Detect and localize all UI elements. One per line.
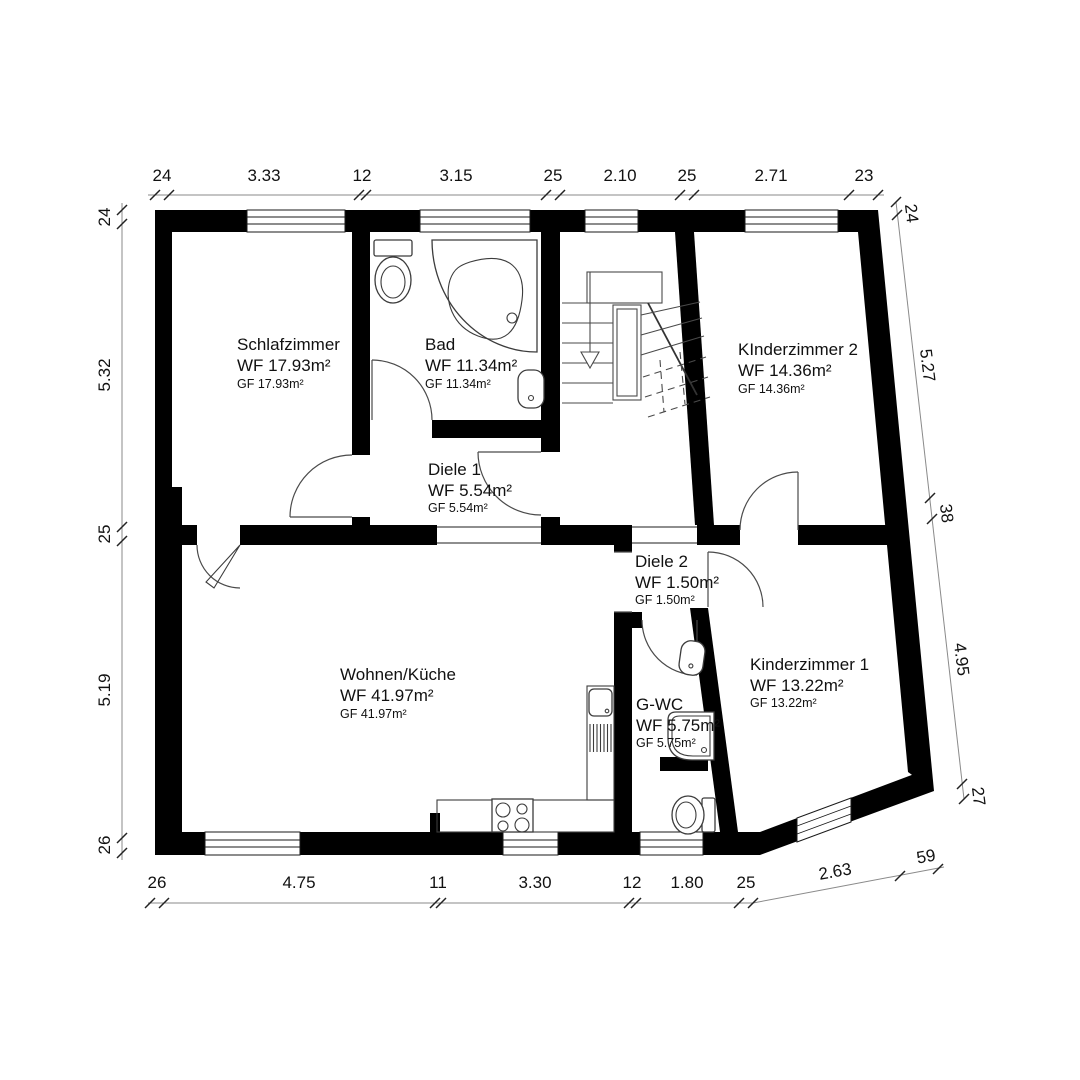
dim-label: 5.32 bbox=[95, 358, 114, 391]
dim-label: 24 bbox=[95, 208, 114, 227]
toilet bbox=[374, 240, 412, 303]
room-label-kinderzimmer2: KInderzimmer 2 WF 14.36m² GF 14.36m² bbox=[738, 340, 858, 396]
dim-label: 26 bbox=[95, 836, 114, 855]
dim-label: 3.15 bbox=[439, 166, 472, 185]
wall-stair-kinderzimmer2 bbox=[675, 232, 714, 525]
wall-middle-d bbox=[798, 525, 890, 545]
dim-label: 27 bbox=[968, 786, 989, 807]
window bbox=[585, 210, 638, 232]
room-name: Wohnen/Küche bbox=[340, 665, 456, 684]
window bbox=[745, 210, 838, 232]
room-label-diele2: Diele 2 WF 1.50m² GF 1.50m² bbox=[635, 552, 719, 607]
dim-label: 38 bbox=[936, 503, 957, 524]
window bbox=[247, 210, 345, 232]
opening-diele1-wohnen bbox=[437, 527, 541, 543]
window bbox=[205, 832, 300, 855]
gwc-toilet bbox=[672, 796, 715, 834]
room-wf: WF 1.50m² bbox=[635, 573, 719, 592]
wall-bad-diele1 bbox=[432, 420, 541, 438]
dim-label: 2.10 bbox=[603, 166, 636, 185]
dim-label: 26 bbox=[148, 873, 167, 892]
wall-middle-c bbox=[697, 525, 740, 545]
room-gf: GF 1.50m² bbox=[635, 593, 695, 607]
room-name: Diele 1 bbox=[428, 460, 481, 479]
room-wf: WF 5.54m² bbox=[428, 481, 512, 500]
gwc-sink bbox=[678, 639, 706, 676]
dim-label: 25 bbox=[544, 166, 563, 185]
wall-middle-b bbox=[541, 525, 632, 545]
room-label-wohnen-kueche: Wohnen/Küche WF 41.97m² GF 41.97m² bbox=[340, 665, 456, 721]
door-schlafzimmer bbox=[290, 455, 352, 517]
stove bbox=[492, 799, 533, 832]
floor-plan-page: Schlafzimmer WF 17.93m² GF 17.93m² Bad W… bbox=[0, 0, 1080, 1080]
room-name: Diele 2 bbox=[635, 552, 688, 571]
room-name: Bad bbox=[425, 335, 455, 354]
wall-wohnen-gwc bbox=[614, 612, 632, 832]
dim-label: 4.75 bbox=[282, 873, 315, 892]
wall-middle-a2 bbox=[240, 525, 437, 545]
room-name: KInderzimmer 2 bbox=[738, 340, 858, 359]
room-wf: WF 13.22m² bbox=[750, 676, 844, 695]
room-wf: WF 14.36m² bbox=[738, 361, 832, 380]
door-bad bbox=[372, 360, 432, 420]
dim-label: 25 bbox=[737, 873, 756, 892]
room-gf: GF 17.93m² bbox=[237, 377, 304, 391]
opening-stair-diele2 bbox=[632, 527, 697, 543]
room-wf: WF 11.34m² bbox=[425, 356, 518, 375]
dim-label: 12 bbox=[353, 166, 372, 185]
dim-label: 24 bbox=[153, 166, 172, 185]
dim-label: 3.30 bbox=[518, 873, 551, 892]
room-label-diele1: Diele 1 WF 5.54m² GF 5.54m² bbox=[428, 460, 512, 515]
stair-down-arrow bbox=[581, 352, 599, 368]
dimension-chain-left: 24 5.32 25 5.19 26 bbox=[95, 203, 127, 860]
wall-middle-a1 bbox=[172, 525, 197, 545]
room-gf: GF 41.97m² bbox=[340, 707, 407, 721]
wall-diele2-gwc bbox=[632, 612, 642, 628]
window bbox=[640, 832, 703, 855]
dim-label: 23 bbox=[855, 166, 874, 185]
room-gf: GF 13.22m² bbox=[750, 696, 817, 710]
room-wf: WF 17.93m² bbox=[237, 356, 331, 375]
dimension-chain-top: 24 3.33 12 3.15 25 2.10 25 2.71 23 bbox=[148, 166, 884, 200]
room-gf: GF 14.36m² bbox=[738, 382, 805, 396]
dim-label: 5.27 bbox=[916, 348, 939, 383]
room-gf: GF 11.34m² bbox=[425, 377, 491, 391]
dim-label: 4.95 bbox=[950, 642, 973, 677]
room-name: Kinderzimmer 1 bbox=[750, 655, 869, 674]
dim-label: 25 bbox=[678, 166, 697, 185]
wall-right-slanted bbox=[858, 210, 934, 791]
walls bbox=[155, 210, 934, 855]
room-gf: GF 5.54m² bbox=[428, 501, 488, 515]
room-label-kinderzimmer1: Kinderzimmer 1 WF 13.22m² GF 13.22m² bbox=[750, 655, 869, 710]
dim-label: 25 bbox=[95, 525, 114, 544]
dim-label: 5.19 bbox=[95, 673, 114, 706]
wall-left-upper bbox=[155, 210, 172, 490]
door-wohnen-angled bbox=[197, 545, 240, 588]
dim-label: 12 bbox=[623, 873, 642, 892]
window-slanted bbox=[797, 798, 851, 842]
wall-schlafzimmer-bad bbox=[352, 232, 370, 455]
room-name: Schlafzimmer bbox=[237, 335, 340, 354]
room-gf: GF 5.75m² bbox=[636, 736, 696, 750]
dim-label: 2.71 bbox=[754, 166, 787, 185]
door-kinderzimmer2 bbox=[740, 472, 798, 530]
dim-label: 24 bbox=[901, 203, 922, 224]
dim-label: 59 bbox=[915, 846, 937, 868]
dim-label: 1.80 bbox=[670, 873, 703, 892]
wall-kitchen-stub bbox=[430, 813, 440, 832]
opening-wohnen-diele2 bbox=[614, 552, 632, 612]
wall-bad-stair-upper bbox=[541, 232, 560, 452]
dim-label: 2.63 bbox=[817, 859, 853, 883]
wall-wohnen-diele2-stub bbox=[614, 545, 632, 552]
dim-label: 3.33 bbox=[247, 166, 280, 185]
bathroom-sink bbox=[518, 370, 544, 408]
dim-label: 11 bbox=[429, 873, 447, 892]
room-name: G-WC bbox=[636, 695, 683, 714]
room-label-schlafzimmer: Schlafzimmer WF 17.93m² GF 17.93m² bbox=[237, 335, 340, 391]
room-wf: WF 5.75m² bbox=[636, 716, 720, 735]
window bbox=[503, 832, 558, 855]
floor-plan-drawing: Schlafzimmer WF 17.93m² GF 17.93m² Bad W… bbox=[0, 0, 1080, 1080]
room-wf: WF 41.97m² bbox=[340, 686, 434, 705]
window bbox=[420, 210, 530, 232]
kitchen-sink bbox=[589, 689, 612, 752]
